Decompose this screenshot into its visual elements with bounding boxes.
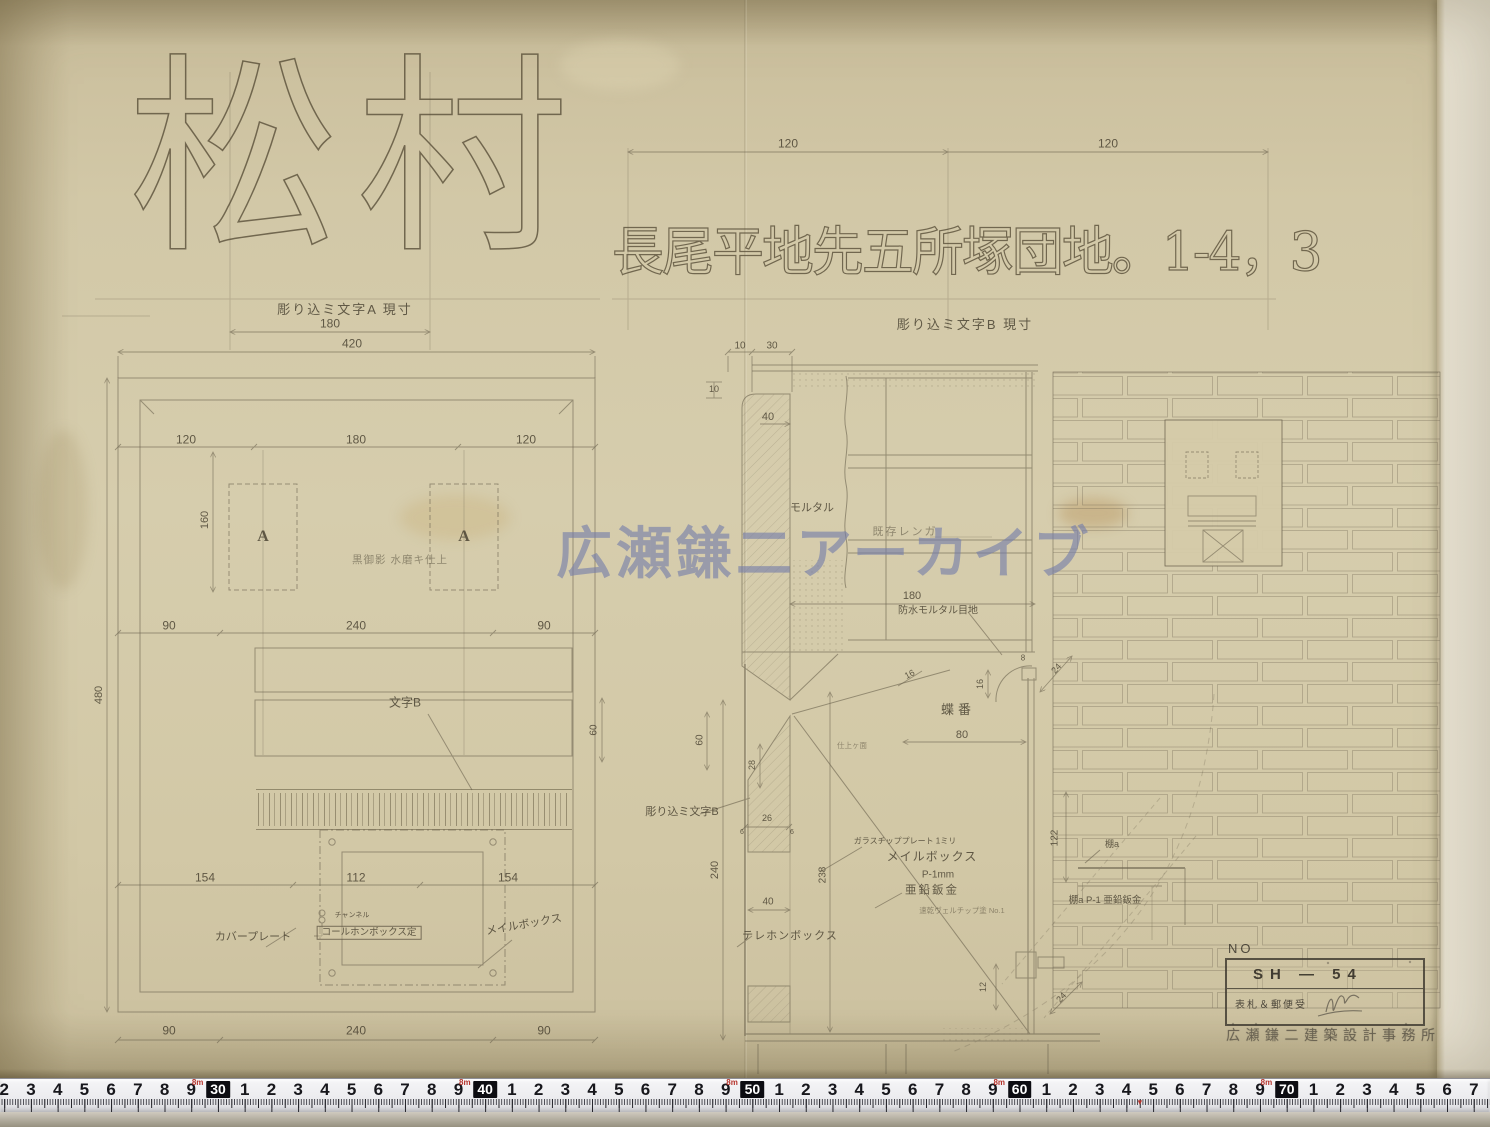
- sec-plate-note: ガラスチッププレート 1ミリ: [854, 838, 957, 847]
- ruler-cm-number: 8: [1229, 1080, 1238, 1100]
- sec-dim-30-top: 30: [766, 341, 777, 352]
- ruler-cm-number: 1: [1042, 1080, 1051, 1100]
- plan-dim-bot-2: 240: [346, 1024, 366, 1037]
- ruler-cm-number: 4: [320, 1080, 329, 1100]
- sec-zinc-label: 亜鉛鈑金: [905, 885, 959, 898]
- ruler-cm-number: 5: [347, 1080, 356, 1100]
- ruler-cm-number: 2: [267, 1080, 276, 1100]
- plan-dim-bot-1: 90: [162, 1024, 175, 1037]
- plan-cover-label: カバープレート: [215, 931, 291, 943]
- ruler-decimeter-box: 30: [206, 1081, 230, 1098]
- plan-dim-mid-2: 240: [346, 619, 366, 632]
- sec-dim-8: 8: [1021, 655, 1025, 664]
- plan-dim-mid-3: 90: [537, 619, 550, 632]
- engrave-b-label: 彫り込ミ文字B: [645, 806, 718, 818]
- sec-dim-122: 122: [1050, 830, 1061, 847]
- sec-dim-16-slope: 16: [903, 668, 916, 681]
- address-letters: 長尾平地先五所塚団地。1-4，3: [612, 224, 1321, 282]
- ruler-cm-number: 6: [1175, 1080, 1184, 1100]
- ruler-ticks: [0, 1099, 1490, 1113]
- ruler-meter-label: 8m: [459, 1078, 471, 1087]
- sec-dim-60: 60: [695, 734, 706, 745]
- ruler-cm-number: 1: [774, 1080, 783, 1100]
- ruler-cm-number: 7: [1202, 1080, 1211, 1100]
- drawing-title: 表札＆郵便受: [1235, 996, 1307, 1011]
- dim-180-letters: 180: [320, 317, 340, 330]
- plan-mailbox-label: メイルボックス: [485, 912, 563, 937]
- ruler-cm-number: 3: [828, 1080, 837, 1100]
- plan-moji-b: 文字B: [389, 696, 421, 709]
- ruler-decimeter-box: 70: [1275, 1081, 1299, 1098]
- ruler-cm-number: 3: [1095, 1080, 1104, 1100]
- sec-phone-label: テレホンボックス: [742, 930, 838, 942]
- ruler-cm-number: 6: [374, 1080, 383, 1100]
- sec-finish-small: 仕上ヶ面: [837, 742, 867, 750]
- sec-shelf-spec: 棚a P-1 亜鉛鈑金: [1069, 896, 1142, 906]
- ruler-cm-number: 4: [587, 1080, 596, 1100]
- plan-dim-bot-3: 90: [537, 1024, 550, 1037]
- ruler-cm-number: 6: [106, 1080, 115, 1100]
- ruler-meter-label: 8m: [726, 1078, 738, 1087]
- ruler-decimeter-box: 60: [1008, 1081, 1032, 1098]
- plan-dim-top-1: 120: [176, 433, 196, 446]
- ruler-cm-number: 8: [961, 1080, 970, 1100]
- ruler-cm-number: 4: [1389, 1080, 1398, 1100]
- sec-dim-180: 180: [903, 590, 921, 602]
- drawing-number: SH — 54: [1227, 960, 1423, 989]
- plan-callbox-label: コールホンボックス定: [317, 926, 422, 940]
- section-linework: [700, 365, 1214, 1074]
- plan-plate-dim-2: 112: [346, 871, 365, 884]
- ruler-red-mark: ▾: [1138, 1097, 1143, 1108]
- ruler-decimeter-box: 50: [741, 1081, 765, 1098]
- sec-waterproof-label: 防水モルタル目地: [898, 606, 978, 617]
- ruler-cm-number: 5: [1148, 1080, 1157, 1100]
- sec-hinge-label: 蝶番: [941, 703, 975, 717]
- ruler-cm-number: 6: [641, 1080, 650, 1100]
- plan-dim-top-3: 120: [516, 433, 536, 446]
- plan-dim-240-right: 240: [709, 861, 721, 879]
- sec-dim-6a: 6: [740, 829, 744, 837]
- sec-mortar-label: モルタル: [790, 502, 834, 514]
- sec-dim-24-diag: 24: [1050, 662, 1064, 676]
- ruler-cm-number: 4: [1122, 1080, 1131, 1100]
- plan-dim-60: 60: [589, 724, 600, 735]
- titleblock-no-label: NO: [1228, 942, 1254, 956]
- plan-plate-dim-3: 154: [498, 871, 518, 884]
- plan-dim-mid-1: 90: [162, 619, 175, 632]
- sec-dim-40-col: 40: [762, 411, 774, 423]
- ruler-cm-number: 5: [614, 1080, 623, 1100]
- ruler-decimeter-box: 40: [473, 1081, 497, 1098]
- ruler-cm-number: 2: [1336, 1080, 1345, 1100]
- ruler-cm-number: 1: [240, 1080, 249, 1100]
- ruler-cm-number: 6: [908, 1080, 917, 1100]
- sec-dim-80: 80: [956, 729, 968, 741]
- paper-stain: [400, 495, 510, 540]
- sec-spec-p1: P-1mm: [922, 870, 954, 881]
- sec-mailbox-label: メイルボックス: [887, 850, 978, 863]
- sec-dim-12: 12: [979, 982, 989, 992]
- brick-elevation: [1053, 372, 1440, 1008]
- plan-plate-dim-1: 154: [195, 871, 215, 884]
- sec-dim-24b: 24: [1055, 991, 1069, 1005]
- ruler-cm-number: 8: [427, 1080, 436, 1100]
- caption-letter-b: 彫り込ミ文字B 現寸: [897, 318, 1033, 332]
- ruler-shadow: [0, 1069, 1490, 1078]
- caption-letter-a: 彫り込ミ文字A 現寸: [277, 303, 413, 317]
- ruler-cm-number: 7: [1469, 1080, 1478, 1100]
- ruler-cm-number: 3: [293, 1080, 302, 1100]
- ruler-cm-number: 4: [855, 1080, 864, 1100]
- plan-finish-note: 黒御影 水磨キ仕上: [352, 555, 448, 567]
- sec-shelf-label: 棚a: [1105, 840, 1119, 850]
- dimension-lines: [107, 152, 1268, 1043]
- titleblock-box: SH — 54 表札＆郵便受: [1225, 958, 1425, 1026]
- ruler-cm-number: 3: [561, 1080, 570, 1100]
- ruler-meter-label: 8m: [1261, 1078, 1273, 1087]
- ruler: 23456789308m123456789408m123456789508m12…: [0, 1078, 1490, 1113]
- ruler-cm-number: 7: [133, 1080, 142, 1100]
- ruler-cm-number: 2: [1068, 1080, 1077, 1100]
- letter-slot-band: [256, 789, 572, 830]
- dim-120-left: 120: [778, 137, 798, 150]
- sec-dim-6b: 6: [790, 829, 794, 837]
- archive-watermark: 広瀬鎌二アーカイブ: [556, 524, 1093, 586]
- sec-dim-16-v: 16: [976, 679, 986, 689]
- plan-dim-160: 160: [199, 511, 211, 529]
- ruler-cm-number: 5: [80, 1080, 89, 1100]
- ruler-cm-number: 1: [1309, 1080, 1318, 1100]
- paper-edge-left: [0, 0, 70, 1078]
- ruler-cm-number: 6: [1442, 1080, 1451, 1100]
- ruler-cm-number: 8: [160, 1080, 169, 1100]
- ruler-meter-label: 8m: [192, 1078, 204, 1087]
- paper-stain: [38, 430, 88, 590]
- ruler-cm-number: 7: [400, 1080, 409, 1100]
- ruler-cm-number: 7: [935, 1080, 944, 1100]
- dim-120-right: 120: [1098, 137, 1118, 150]
- ruler-cm-number: 4: [53, 1080, 62, 1100]
- nameplate-letters: 松村: [128, 42, 584, 275]
- ruler-cm-number: 3: [26, 1080, 35, 1100]
- sec-dim-40b: 40: [762, 897, 773, 908]
- ruler-cm-number: 2: [534, 1080, 543, 1100]
- sec-existing-label: 既存レンガ: [873, 526, 938, 538]
- sec-dim-10-top: 10: [734, 341, 745, 352]
- ruler-cm-number: 7: [668, 1080, 677, 1100]
- sec-dim-10-left: 10: [709, 385, 719, 395]
- ruler-meter-label: 8m: [993, 1078, 1005, 1087]
- paper-backing-strip: [1437, 0, 1490, 1078]
- plan-dim-420: 420: [342, 337, 362, 350]
- ruler-cm-number: 5: [881, 1080, 890, 1100]
- plan-dim-480: 480: [93, 686, 105, 704]
- ruler-cm-number: 3: [1362, 1080, 1371, 1100]
- sec-dim-26: 26: [762, 814, 772, 824]
- ruler-cm-number: 8: [694, 1080, 703, 1100]
- plan-letter-a-mark-2: A: [458, 528, 470, 546]
- sec-dim-28: 28: [748, 760, 758, 770]
- office-stamp: 広瀬鎌二建築設計事務所: [1226, 1028, 1441, 1043]
- ruler-cm-number: 2: [0, 1080, 9, 1100]
- ruler-cm-number: 5: [1416, 1080, 1425, 1100]
- sec-dim-238: 238: [818, 867, 829, 884]
- sec-paint-note: 速乾ヴェルチップ塗 No.1: [919, 907, 1004, 915]
- ruler-cm-number: 1: [507, 1080, 516, 1100]
- plan-letter-a-mark-1: A: [257, 528, 269, 546]
- drawing-sheet: 松村 長尾平地先五所塚団地。1-4，3 彫り込ミ文字A 現寸 180 120 1…: [0, 0, 1490, 1127]
- table-surface: [0, 1112, 1490, 1127]
- ruler-cm-number: 2: [801, 1080, 810, 1100]
- plan-channel-note: チャンネル: [335, 912, 370, 920]
- plan-dim-top-2: 180: [346, 433, 366, 446]
